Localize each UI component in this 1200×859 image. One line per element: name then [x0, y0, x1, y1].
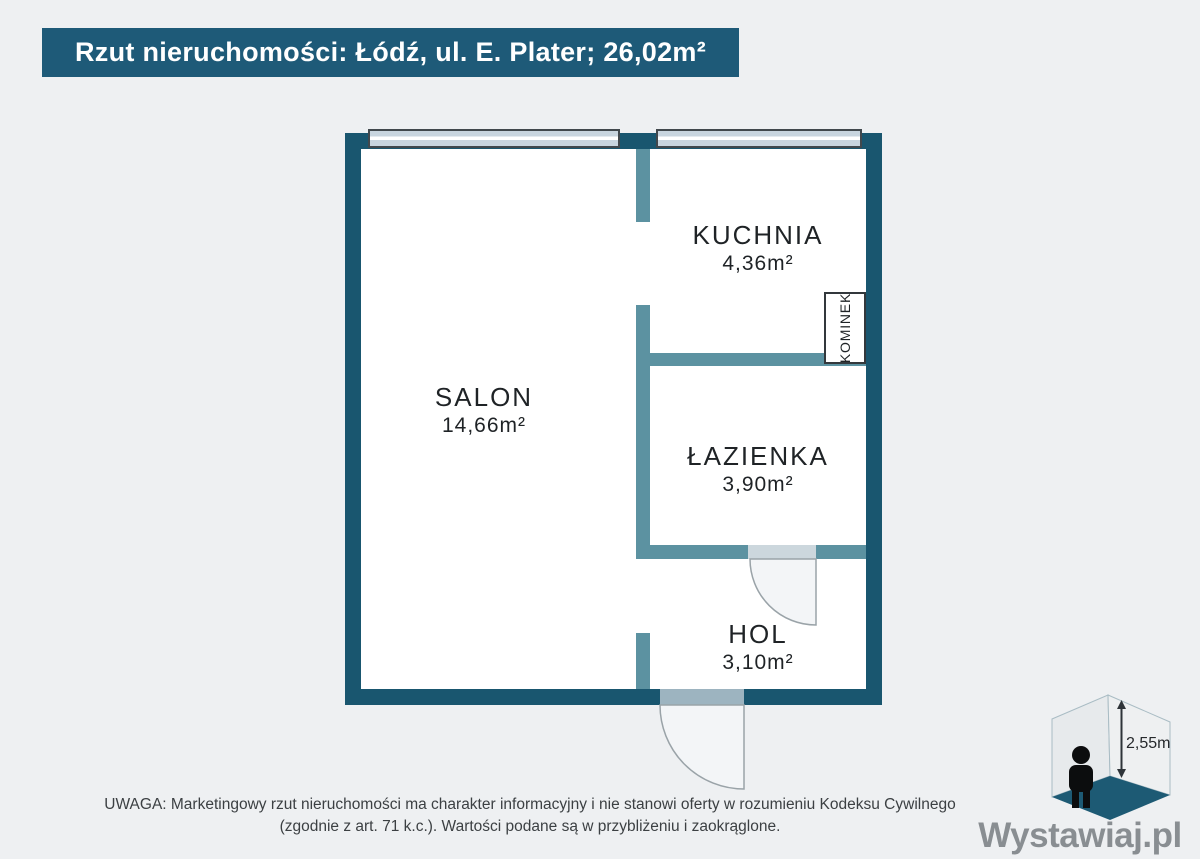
- floor-plan-page: Rzut nieruchomości: Łódź, ul. E. Plater;…: [0, 0, 1200, 859]
- disclaimer-line-2: (zgodnie z art. 71 k.c.). Wartości podan…: [70, 816, 990, 838]
- room-name: HOL: [648, 619, 868, 649]
- page-title: Rzut nieruchomości: Łódź, ul. E. Plater;…: [75, 37, 706, 68]
- disclaimer: UWAGA: Marketingowy rzut nieruchomości m…: [70, 794, 990, 838]
- room-label-kuchnia: KUCHNIA 4,36m²: [648, 220, 868, 278]
- outer-wall-left: [345, 133, 361, 705]
- room-name: KUCHNIA: [648, 220, 868, 250]
- kominek-box: KOMINEK: [824, 292, 866, 364]
- window-kuchnia: [656, 129, 862, 148]
- ceiling-height-label: 2,55m: [1126, 735, 1170, 753]
- logo-text: Wystawiaj.pl: [960, 816, 1200, 856]
- disclaimer-line-1: UWAGA: Marketingowy rzut nieruchomości m…: [70, 794, 990, 816]
- window-salon: [368, 129, 620, 148]
- entry-door-arc-icon: [658, 703, 748, 793]
- outer-wall-right: [866, 133, 882, 705]
- room-label-hol: HOL 3,10m²: [648, 619, 868, 677]
- outer-wall-bottom: [345, 689, 882, 705]
- title-bar: Rzut nieruchomości: Łódź, ul. E. Plater;…: [42, 28, 739, 77]
- room-name: ŁAZIENKA: [648, 441, 868, 471]
- logo-cube-icon: [1040, 685, 1175, 825]
- inner-wall-lazienka-hol-right: [816, 545, 866, 559]
- room-area: 14,66m²: [364, 412, 604, 440]
- room-area: 3,10m²: [648, 649, 868, 677]
- room-name: SALON: [364, 382, 604, 412]
- room-area: 4,36m²: [648, 250, 868, 278]
- room-label-salon: SALON 14,66m²: [364, 382, 604, 440]
- room-area: 3,90m²: [648, 471, 868, 499]
- kominek-label: KOMINEK: [837, 293, 853, 363]
- inner-wall-lazienka-hol-left: [636, 545, 748, 559]
- room-label-lazienka: ŁAZIENKA 3,90m²: [648, 441, 868, 499]
- inner-wall-salon-lazienka: [636, 305, 650, 559]
- inner-wall-salon-kuchnia-upper: [636, 149, 650, 222]
